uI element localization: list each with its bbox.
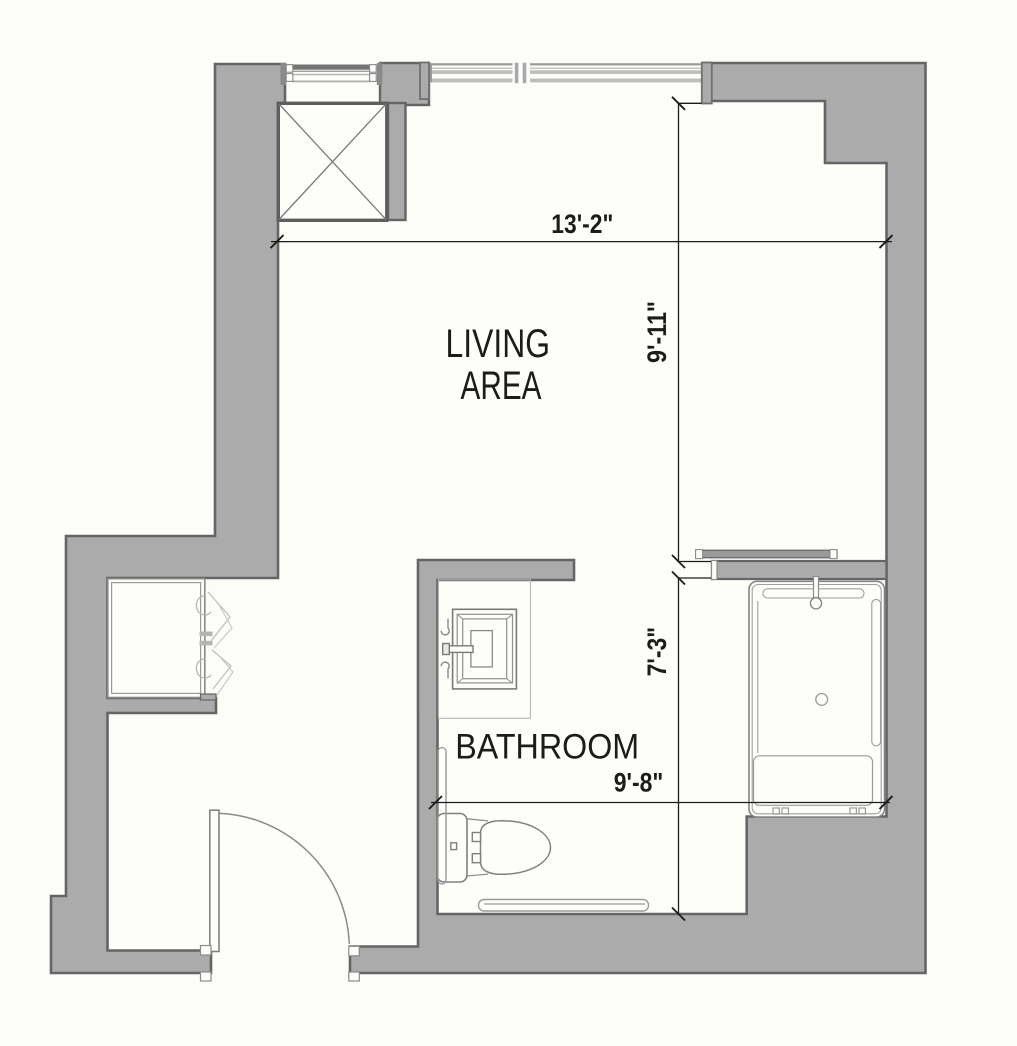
svg-text:13'-2": 13'-2" [551, 209, 613, 239]
svg-text:AREA: AREA [461, 364, 542, 408]
svg-text:LIVING: LIVING [446, 322, 551, 366]
svg-text:7'-3": 7'-3" [642, 627, 672, 677]
svg-text:BATHROOM: BATHROOM [455, 727, 639, 767]
svg-text:9'-11": 9'-11" [642, 301, 672, 363]
svg-text:9'-8": 9'-8" [614, 768, 664, 798]
